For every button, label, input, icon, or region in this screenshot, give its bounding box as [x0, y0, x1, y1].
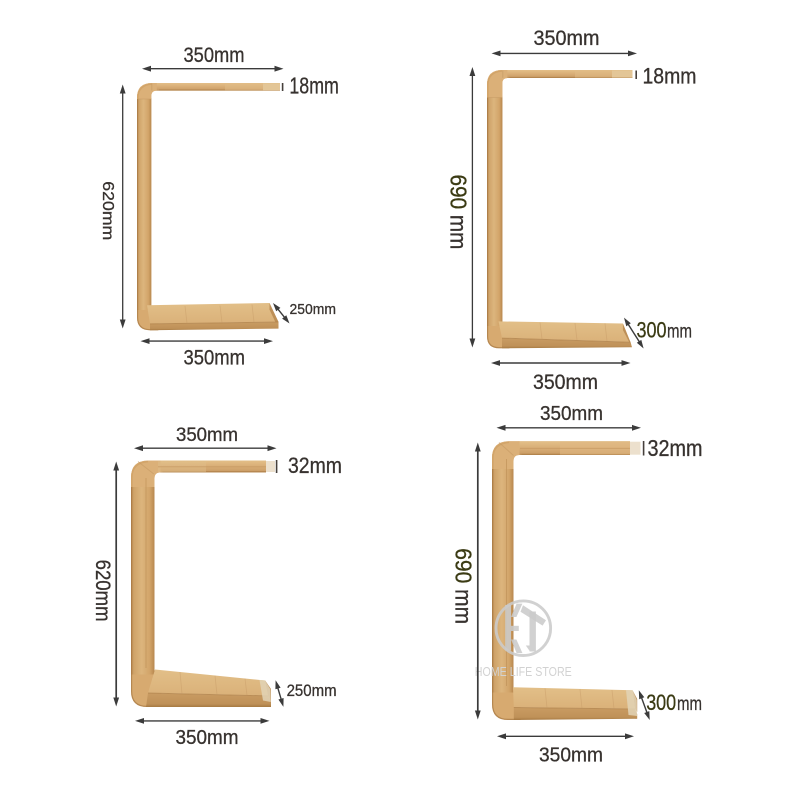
svg-text:HOME LIFE STORE: HOME LIFE STORE — [475, 664, 572, 679]
svg-text:350mm: 350mm — [176, 726, 239, 749]
svg-text:250mm: 250mm — [290, 302, 337, 318]
svg-text:620mm: 620mm — [91, 560, 114, 622]
svg-text:350mm: 350mm — [540, 402, 603, 425]
svg-text:250mm: 250mm — [287, 682, 337, 700]
svg-text:350mm: 350mm — [539, 744, 603, 767]
svg-text:690 mm: 690 mm — [450, 548, 476, 624]
svg-text:18mm: 18mm — [289, 73, 339, 99]
svg-text:350mm: 350mm — [176, 424, 238, 446]
svg-text:350mm: 350mm — [184, 346, 246, 369]
svg-text:32mm: 32mm — [288, 453, 342, 478]
svg-text:350mm: 350mm — [533, 370, 598, 394]
svg-text:350mm: 350mm — [534, 26, 600, 50]
svg-text:32mm: 32mm — [648, 435, 703, 461]
svg-text:690 mm: 690 mm — [446, 175, 472, 250]
svg-text:18mm: 18mm — [643, 64, 697, 89]
svg-text:350mm: 350mm — [184, 44, 245, 67]
svg-text:mm: mm — [677, 693, 702, 715]
svg-text:300: 300 — [637, 318, 667, 343]
svg-text:300: 300 — [646, 690, 676, 715]
svg-text:mm: mm — [667, 321, 692, 343]
svg-text:620mm: 620mm — [99, 181, 116, 240]
